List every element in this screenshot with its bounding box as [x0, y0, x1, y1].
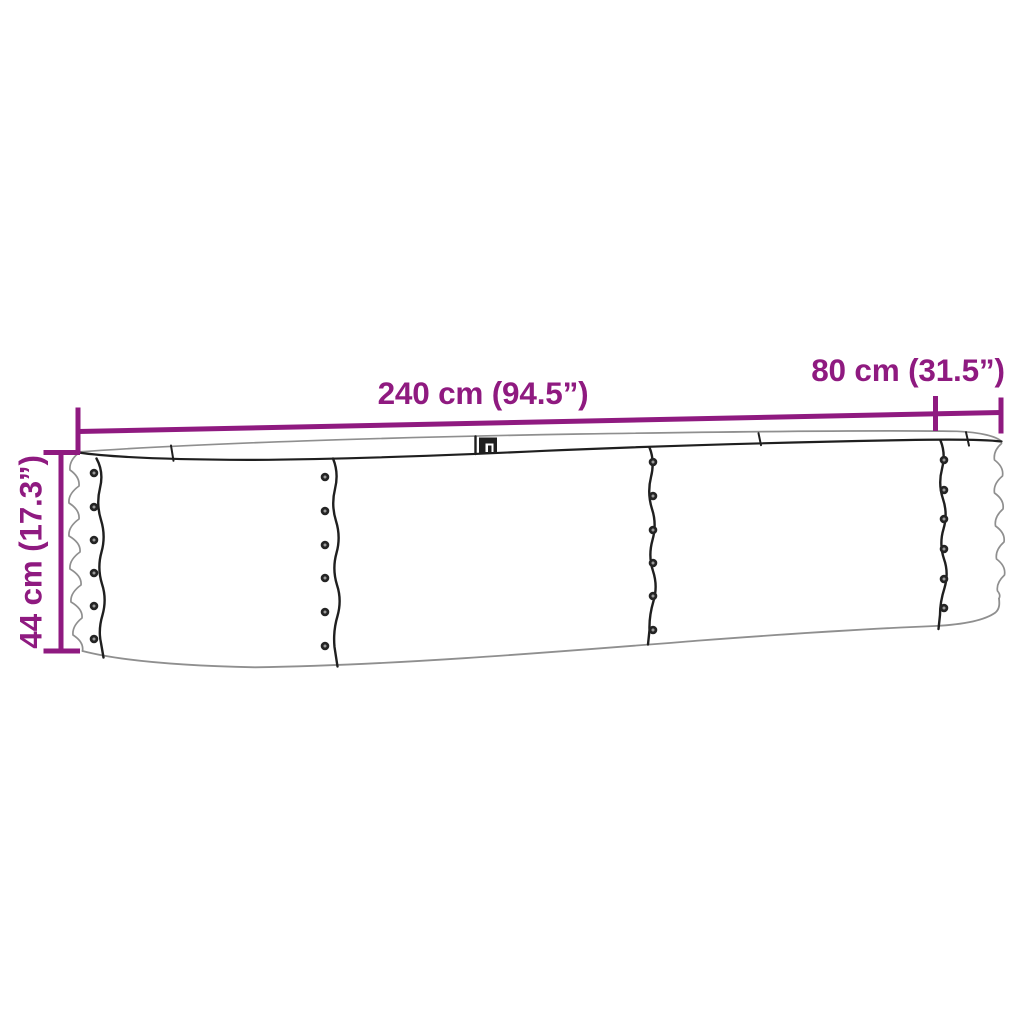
width-dimension-label: 80 cm (31.5”) — [811, 352, 1005, 388]
garden-bed-illustration — [69, 431, 1005, 667]
bed-body-fill — [78, 440, 1002, 668]
garden-bed-line-art: 240 cm (94.5”) 80 cm (31.5”) 44 cm (17.3… — [0, 0, 1024, 1024]
height-dimension-label: 44 cm (17.3”) — [13, 455, 49, 649]
product-dimension-diagram: 240 cm (94.5”) 80 cm (31.5”) 44 cm (17.3… — [0, 0, 1024, 1024]
length-dimension-line — [78, 413, 1001, 432]
length-dimension-label: 240 cm (94.5”) — [378, 375, 589, 411]
rim-connector-clip — [476, 437, 498, 455]
